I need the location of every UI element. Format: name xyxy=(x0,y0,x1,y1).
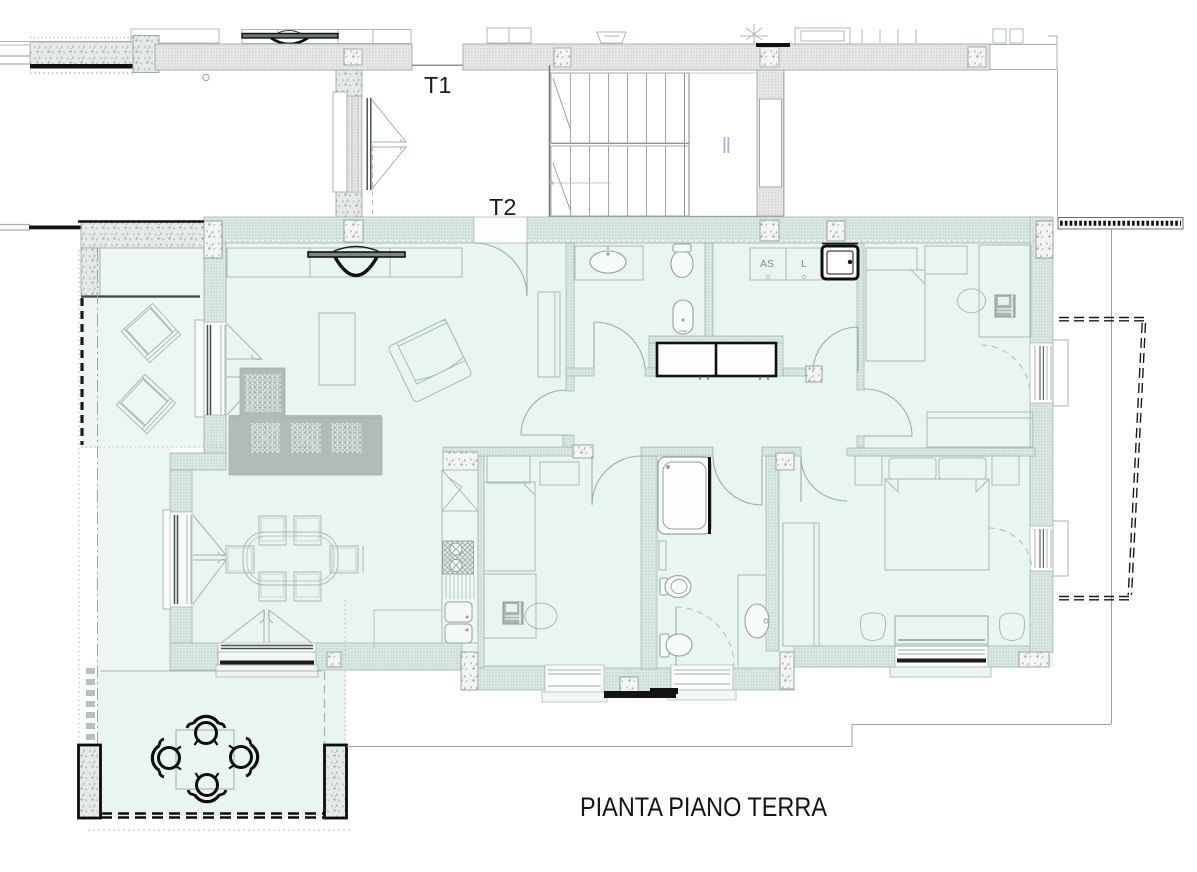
svg-text:PIANTA PIANO TERRA: PIANTA PIANO TERRA xyxy=(580,792,827,822)
svg-text:T1: T1 xyxy=(424,72,451,98)
svg-text:AS: AS xyxy=(760,258,774,270)
svg-text:T2: T2 xyxy=(489,194,516,220)
svg-text:L: L xyxy=(801,258,807,270)
